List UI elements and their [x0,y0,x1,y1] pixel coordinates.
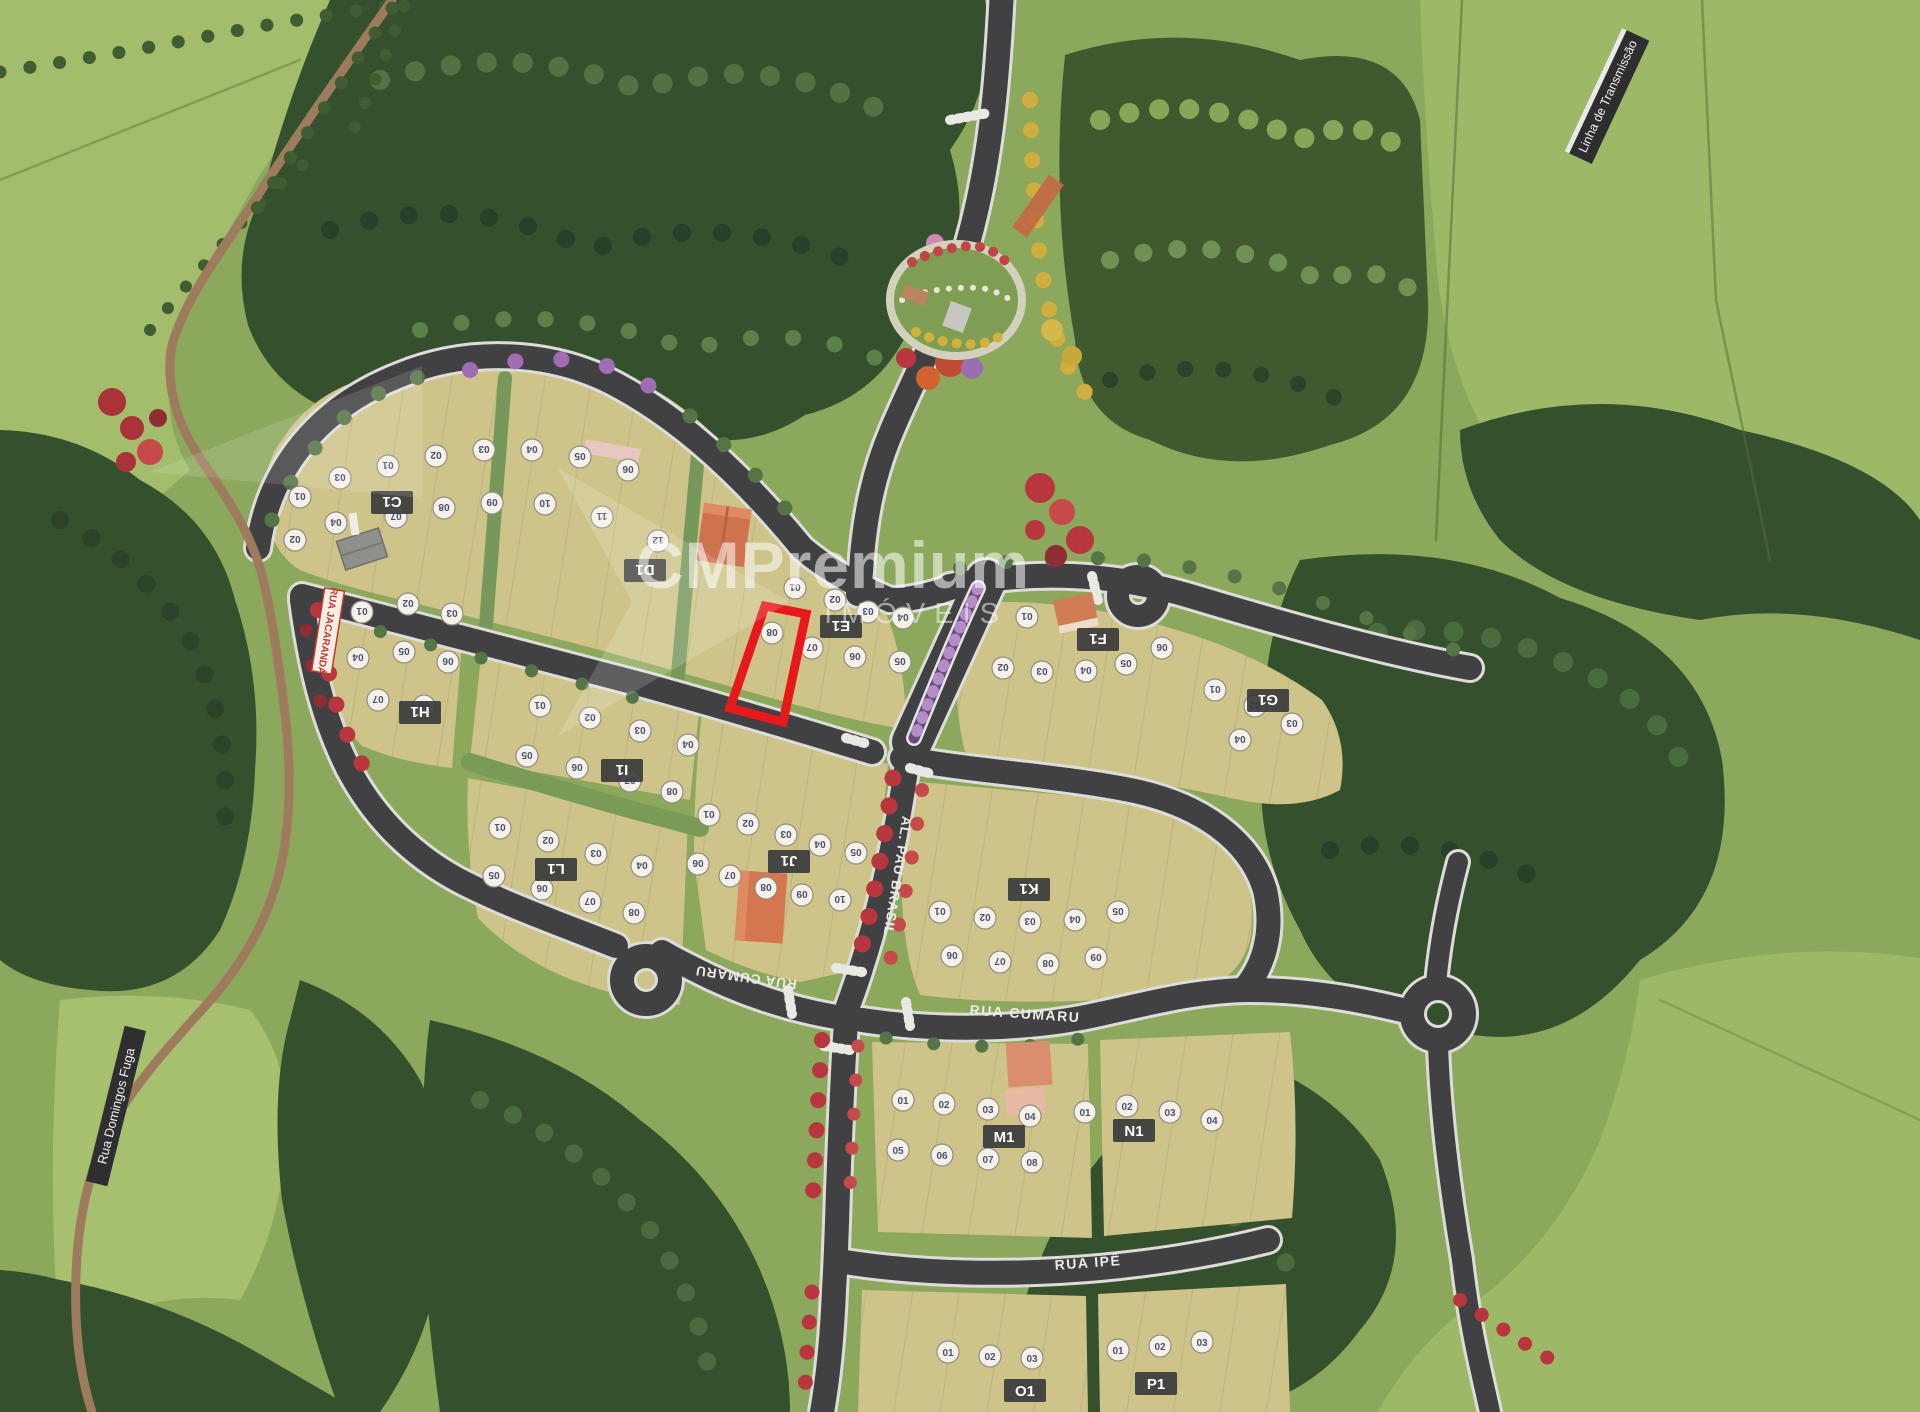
lot-marker: 02 [397,593,419,615]
block-label-h1: H1 [399,701,441,724]
lot-marker: 03 [473,439,495,461]
svg-text:H1: H1 [410,703,429,720]
svg-text:03: 03 [780,828,792,839]
lot-marker: 02 [284,529,306,551]
svg-text:06: 06 [622,463,634,474]
svg-text:I1: I1 [616,761,629,778]
lot-marker: 03 [1159,1101,1181,1123]
lot-marker: 01 [289,486,311,508]
svg-text:02: 02 [997,661,1009,672]
svg-text:02: 02 [289,533,301,544]
block-label-l1: L1 [535,858,577,881]
lot-marker: 06 [941,945,963,967]
lot-marker: 06 [531,878,553,900]
lot-marker: 01 [529,695,551,717]
watermark-brand: CMPremium [636,528,1030,602]
svg-text:05: 05 [488,869,500,880]
svg-text:07: 07 [372,693,384,704]
lot-marker: 04 [677,734,699,756]
lot-marker: 03 [441,603,463,625]
svg-text:07: 07 [994,955,1006,966]
svg-text:02: 02 [542,834,554,845]
svg-text:03: 03 [1196,1338,1208,1349]
svg-text:02: 02 [402,597,414,608]
svg-text:01: 01 [1112,1346,1124,1357]
lot-marker: 08 [1021,1151,1043,1173]
lot-marker: 02 [992,657,1014,679]
svg-text:03: 03 [1164,1108,1176,1119]
lot-marker: 08 [661,781,683,803]
svg-text:03: 03 [478,443,490,454]
block-label-n1: N1 [1113,1119,1155,1142]
svg-text:02: 02 [938,1100,950,1111]
svg-text:05: 05 [521,749,533,760]
svg-text:08: 08 [1042,957,1054,968]
svg-text:N1: N1 [1124,1123,1143,1140]
lot-marker: 05 [845,842,867,864]
lot-marker: 02 [979,1345,1001,1367]
svg-text:P1: P1 [1147,1376,1165,1393]
svg-text:04: 04 [814,838,826,849]
svg-text:02: 02 [430,449,442,460]
lot-marker: 04 [1201,1109,1223,1131]
lot-marker: 06 [617,459,639,481]
lot-marker: 03 [775,824,797,846]
svg-text:08: 08 [438,501,450,512]
lot-marker: 06 [687,853,709,875]
svg-text:06: 06 [849,650,861,661]
lot-marker: 01 [1074,1101,1096,1123]
svg-text:02: 02 [1154,1342,1166,1353]
svg-text:05: 05 [1112,905,1124,916]
lot-marker: 01 [892,1089,914,1111]
svg-text:03: 03 [982,1105,994,1116]
svg-text:01: 01 [294,490,306,501]
svg-text:05: 05 [850,846,862,857]
lot-marker: 06 [1151,637,1173,659]
svg-text:07: 07 [724,869,736,880]
svg-text:L1: L1 [547,860,565,877]
svg-text:01: 01 [494,821,506,832]
lot-marker: 02 [537,830,559,852]
lot-marker: 03 [1019,911,1041,933]
svg-text:05: 05 [892,1146,904,1157]
block-label-o1: O1 [1004,1379,1046,1402]
lot-marker: 04 [809,834,831,856]
trees-south-road-red [812,1040,822,1218]
svg-text:02: 02 [984,1352,996,1363]
svg-text:06: 06 [946,949,958,960]
svg-text:05: 05 [574,450,586,461]
svg-text:G1: G1 [1258,691,1278,708]
lot-marker: 05 [1115,653,1137,675]
lot-marker: 01 [929,901,951,923]
lot-marker: 02 [933,1093,955,1115]
svg-text:06: 06 [936,1151,948,1162]
lot-marker: 06 [844,646,866,668]
lot-marker: 09 [481,492,503,514]
svg-text:03: 03 [634,724,646,735]
lot-marker: 08 [1037,953,1059,975]
svg-text:J1: J1 [781,852,798,869]
lot-marker: 01 [1204,679,1226,701]
lot-marker: 04 [1229,729,1251,751]
block-label-p1: P1 [1135,1372,1177,1395]
svg-text:02: 02 [1121,1102,1133,1113]
svg-text:O1: O1 [1015,1383,1035,1400]
lot-marker: 07 [989,951,1011,973]
lot-marker: 09 [791,884,813,906]
lot-marker: 04 [325,512,347,534]
svg-text:01: 01 [534,699,546,710]
lot-marker: 02 [737,813,759,835]
svg-text:05: 05 [894,655,906,666]
lot-marker: 02 [1116,1095,1138,1117]
svg-text:09: 09 [1090,951,1102,962]
lot-marker: 04 [1019,1105,1041,1127]
entrance-garden [886,240,1026,360]
lot-marker: 08 [755,877,777,899]
svg-text:09: 09 [486,496,498,507]
svg-text:02: 02 [979,911,991,922]
svg-text:04: 04 [526,443,538,454]
svg-text:08: 08 [1026,1158,1038,1169]
svg-text:09: 09 [796,888,808,899]
block-label-g1: G1 [1247,689,1289,712]
svg-text:10: 10 [539,497,551,508]
svg-text:01: 01 [897,1096,909,1107]
svg-text:01: 01 [1021,610,1033,621]
lot-marker: 08 [623,902,645,924]
lot-marker: 03 [1021,1347,1043,1369]
svg-text:04: 04 [1024,1112,1036,1123]
svg-text:04: 04 [1069,913,1081,924]
svg-text:07: 07 [982,1155,994,1166]
lot-marker: 10 [534,493,556,515]
maquette-photo: Linha de Transmissão Rua Domingos Fuga R… [0,0,1920,1412]
block-label-j1: J1 [768,850,810,873]
svg-text:06: 06 [442,655,454,666]
lot-marker: 05 [887,1139,909,1161]
svg-text:06: 06 [536,882,548,893]
lot-marker: 07 [579,891,601,913]
watermark-subtitle: IMÓVEIS [824,597,1008,630]
svg-text:08: 08 [666,785,678,796]
svg-text:07: 07 [806,641,818,652]
svg-text:02: 02 [742,817,754,828]
svg-text:08: 08 [628,906,640,917]
lot-marker: 05 [483,865,505,887]
svg-text:03: 03 [446,607,458,618]
lot-marker: 08 [433,497,455,519]
block-label-m1: M1 [983,1125,1025,1148]
svg-text:04: 04 [1234,733,1246,744]
svg-text:04: 04 [352,651,364,662]
svg-text:K1: K1 [1019,880,1038,897]
svg-text:M1: M1 [994,1129,1015,1146]
block-label-k1: K1 [1008,878,1050,901]
lot-marker: 10 [829,889,851,911]
lot-marker: 06 [931,1144,953,1166]
svg-text:01: 01 [356,605,368,616]
lot-marker: 04 [1064,909,1086,931]
svg-text:03: 03 [1286,717,1298,728]
lot-marker: 03 [977,1098,999,1120]
lot-marker: 01 [351,601,373,623]
svg-text:06: 06 [1156,641,1168,652]
lot-marker: 04 [1075,660,1097,682]
svg-text:03: 03 [1024,915,1036,926]
lot-marker: 01 [698,804,720,826]
lot-marker: 05 [569,446,591,468]
lot-marker: 03 [629,720,651,742]
lot-marker: 07 [719,865,741,887]
lot-marker: 02 [974,907,996,929]
lot-marker: 01 [1107,1339,1129,1361]
svg-text:04: 04 [1080,664,1092,675]
svg-text:03: 03 [590,847,602,858]
svg-text:01: 01 [1209,683,1221,694]
svg-text:01: 01 [942,1348,954,1359]
lot-marker: 05 [1107,901,1129,923]
lot-marker: 03 [585,843,607,865]
svg-text:07: 07 [584,895,596,906]
svg-text:03: 03 [1026,1354,1038,1365]
svg-text:01: 01 [703,808,715,819]
lot-marker: 02 [425,445,447,467]
svg-text:05: 05 [398,645,410,656]
svg-text:01: 01 [934,905,946,916]
svg-text:F1: F1 [1089,630,1107,647]
lot-marker: 07 [977,1148,999,1170]
lot-marker: 01 [489,817,511,839]
block-label-f1: F1 [1077,628,1119,651]
svg-text:08: 08 [766,626,778,637]
lot-marker: 03 [1281,713,1303,735]
svg-text:04: 04 [330,516,342,527]
lot-marker: 03 [1191,1331,1213,1353]
svg-text:08: 08 [760,881,772,892]
svg-text:04: 04 [636,859,648,870]
svg-text:01: 01 [1079,1108,1091,1119]
lot-marker: 04 [521,439,543,461]
svg-text:10: 10 [834,893,846,904]
svg-text:04: 04 [1206,1116,1218,1127]
svg-text:06: 06 [571,761,583,772]
lot-marker: 05 [393,641,415,663]
svg-text:06: 06 [692,857,704,868]
svg-text:05: 05 [1120,657,1132,668]
svg-text:04: 04 [682,738,694,749]
block-label-i1: I1 [601,759,643,782]
lot-marker: 05 [889,651,911,673]
lot-marker: 03 [1031,661,1053,683]
lot-marker: 06 [437,651,459,673]
lot-marker: 04 [631,855,653,877]
lot-marker: 09 [1085,947,1107,969]
lot-marker: 02 [1149,1335,1171,1357]
lot-marker: 08 [761,622,783,644]
svg-text:03: 03 [1036,665,1048,676]
lot-marker: 04 [347,647,369,669]
lot-marker: 05 [516,745,538,767]
lot-marker: 01 [937,1341,959,1363]
lot-marker: 07 [367,689,389,711]
lot-marker: 01 [1016,606,1038,628]
lot-marker: 06 [566,757,588,779]
